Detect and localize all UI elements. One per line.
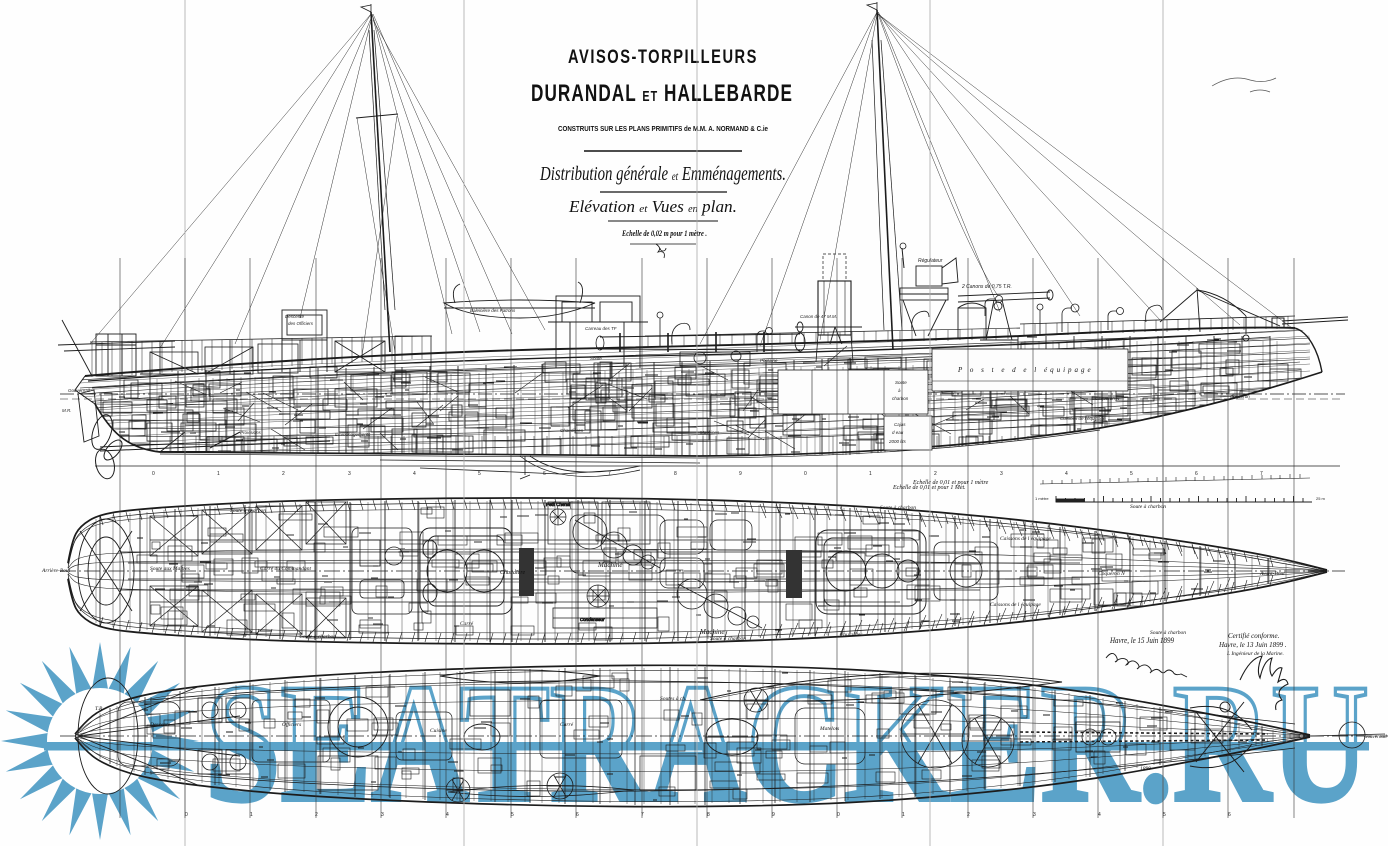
svg-text:Carreau des TF: Carreau des TF xyxy=(585,326,617,331)
svg-text:9: 9 xyxy=(739,471,742,477)
svg-text:6: 6 xyxy=(576,812,579,818)
svg-text:Soute à charbon: Soute à charbon xyxy=(300,634,336,640)
svg-text:Petit Chenal: Petit Chenal xyxy=(546,502,571,507)
svg-text:0: 0 xyxy=(152,471,155,477)
svg-text:Provisions: Provisions xyxy=(240,430,262,435)
svg-text:6: 6 xyxy=(1195,471,1198,477)
svg-text:0: 0 xyxy=(804,471,807,477)
svg-text:5: 5 xyxy=(511,812,514,818)
svg-text:Carré: Carré xyxy=(560,722,574,728)
svg-text:Coqueron N: Coqueron N xyxy=(1098,571,1125,577)
svg-text:Avant-Bout: Avant-Bout xyxy=(1259,571,1285,577)
svg-text:Soute à charbon: Soute à charbon xyxy=(230,508,266,514)
svg-text:Chaudière: Chaudière xyxy=(500,570,525,576)
svg-text:7: 7 xyxy=(641,812,644,818)
svg-text:2: 2 xyxy=(282,471,285,477)
svg-text:Carré: Carré xyxy=(460,621,474,627)
svg-text:Havre, le 13 Juin 1899 .: Havre, le 13 Juin 1899 . xyxy=(1218,641,1287,649)
svg-text:Descente: Descente xyxy=(285,314,305,319)
svg-text:Descente: Descente xyxy=(149,722,171,728)
svg-text:Machine: Machine xyxy=(699,628,725,636)
svg-text:Soute aux Maîtres: Soute aux Maîtres xyxy=(150,566,190,572)
svg-text:Cajas: Cajas xyxy=(894,422,906,427)
svg-text:Soute à charbon: Soute à charbon xyxy=(1130,504,1166,510)
svg-text:4: 4 xyxy=(1065,471,1068,477)
svg-text:Soute: Soute xyxy=(590,356,602,361)
svg-text:Caissons de l équipage: Caissons de l équipage xyxy=(1000,536,1051,542)
svg-text:Machines: Machines xyxy=(700,430,720,435)
svg-text:8: 8 xyxy=(674,471,677,477)
svg-text:Elévation et Vues en plan.: Elévation et Vues en plan. xyxy=(568,197,737,216)
svg-text:25 m: 25 m xyxy=(1316,496,1326,501)
svg-text:Condenseur: Condenseur xyxy=(580,617,605,622)
svg-text:Gouvernail: Gouvernail xyxy=(68,388,91,393)
svg-text:6: 6 xyxy=(543,471,546,477)
svg-text:7: 7 xyxy=(1260,471,1263,477)
svg-text:Soute: Soute xyxy=(895,380,907,385)
svg-text:2: 2 xyxy=(967,812,970,818)
svg-text:Cuisines de l équipage: Cuisines de l équipage xyxy=(1060,416,1106,421)
svg-text:3: 3 xyxy=(348,471,351,477)
svg-text:5: 5 xyxy=(1163,812,1166,818)
svg-text:1: 1 xyxy=(869,471,872,477)
svg-text:Poulailler: Poulailler xyxy=(839,632,863,638)
svg-text:2 Canons de 0,75 T.R.: 2 Canons de 0,75 T.R. xyxy=(961,284,1012,290)
svg-text:4: 4 xyxy=(446,812,449,818)
svg-text:Baleinière des Patrons: Baleinière des Patrons xyxy=(470,308,516,313)
svg-text:M.R.: M.R. xyxy=(62,408,72,413)
svg-text:Carré du Commandant: Carré du Commandant xyxy=(260,566,312,572)
svg-text:5: 5 xyxy=(1130,471,1133,477)
svg-text:Machine: Machine xyxy=(597,561,623,569)
svg-text:2: 2 xyxy=(934,471,937,477)
svg-text:Soute à charbon: Soute à charbon xyxy=(880,505,916,511)
svg-text:Havre, le 15 Juin 1899: Havre, le 15 Juin 1899 xyxy=(1109,635,1174,645)
svg-text:2000 lits: 2000 lits xyxy=(888,439,907,444)
svg-text:Poulaine: Poulaine xyxy=(760,358,778,363)
svg-text:6: 6 xyxy=(1228,812,1231,818)
svg-text:Soutes à ch.: Soutes à ch. xyxy=(660,696,686,702)
svg-text:des Officiers: des Officiers xyxy=(288,321,314,326)
svg-text:Chaudières: Chaudières xyxy=(560,428,584,433)
svg-text:Distribution générale et Emmén: Distribution générale et Emménagements. xyxy=(539,163,786,185)
svg-text:Arrière-Bout: Arrière-Bout xyxy=(41,568,71,574)
svg-text:charbon: charbon xyxy=(892,396,909,401)
svg-text:P o s t e d e l équipage: P o s t e d e l équipage xyxy=(957,366,1094,374)
svg-text:Certifié conforme.: Certifié conforme. xyxy=(1228,632,1280,640)
svg-text:3: 3 xyxy=(1033,812,1036,818)
svg-text:5: 5 xyxy=(478,471,481,477)
svg-text:1 mètre: 1 mètre xyxy=(1035,496,1049,501)
svg-text:4: 4 xyxy=(1098,812,1101,818)
svg-text:Emménagements: Emménagements xyxy=(335,432,371,437)
svg-text:1: 1 xyxy=(902,812,905,818)
svg-text:T.R.: T.R. xyxy=(95,706,104,712)
svg-text:Caissons de l équipage: Caissons de l équipage xyxy=(990,602,1041,608)
svg-text:Cuisine: Cuisine xyxy=(430,728,447,734)
svg-text:DURANDAL ET HALLEBARDE: DURANDAL ET HALLEBARDE xyxy=(531,80,793,107)
svg-text:1: 1 xyxy=(250,812,253,818)
svg-text:8: 8 xyxy=(707,812,710,818)
svg-text:CONSTRUITS SUR LES PLANS PRIMI: CONSTRUITS SUR LES PLANS PRIMITIFS de M.… xyxy=(558,124,768,133)
svg-text:AVISOS-TORPILLEURS: AVISOS-TORPILLEURS xyxy=(568,47,758,68)
svg-text:2: 2 xyxy=(315,812,318,818)
svg-text:Coqueron: Coqueron xyxy=(1230,394,1250,399)
svg-text:1899: 1899 xyxy=(1140,766,1151,772)
svg-text:1: 1 xyxy=(217,471,220,477)
svg-text:7: 7 xyxy=(608,471,611,477)
svg-text:Matelots: Matelots xyxy=(819,726,839,732)
svg-text:Caqueron N: Caqueron N xyxy=(1095,396,1120,401)
svg-text:Soute à charbon: Soute à charbon xyxy=(710,636,746,642)
svg-text:Gouvernail: Gouvernail xyxy=(1364,735,1387,740)
svg-text:L Ingénieur de la Marine.: L Ingénieur de la Marine. xyxy=(1226,651,1284,657)
svg-text:0: 0 xyxy=(837,812,840,818)
svg-text:9: 9 xyxy=(772,812,775,818)
svg-text:3: 3 xyxy=(381,812,384,818)
svg-text:4: 4 xyxy=(413,471,416,477)
svg-text:Canon de 47 M.M.: Canon de 47 M.M. xyxy=(800,314,837,319)
svg-text:Echelle de 0,02 m pour 1 mètr: Echelle de 0,02 m pour 1 mètre . xyxy=(621,229,707,238)
svg-text:Officiers: Officiers xyxy=(282,721,301,728)
svg-text:0: 0 xyxy=(185,812,188,818)
svg-text:3: 3 xyxy=(1000,471,1003,477)
svg-text:Echelle de 0,01 et pour 1 Mèt.: Echelle de 0,01 et pour 1 Mèt. xyxy=(892,485,966,491)
